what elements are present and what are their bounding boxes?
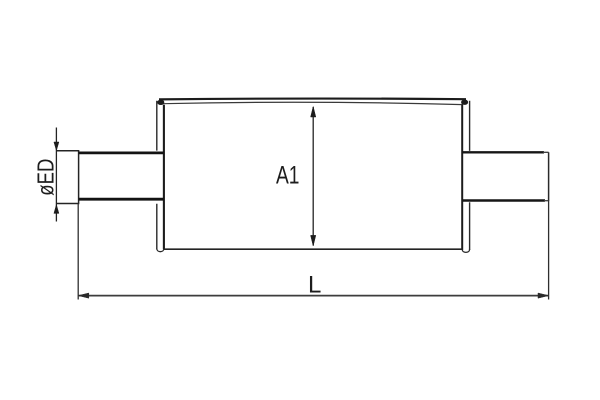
svg-text:A1: A1 xyxy=(276,161,300,189)
svg-text:øED: øED xyxy=(32,159,58,196)
svg-text:L: L xyxy=(308,271,321,298)
